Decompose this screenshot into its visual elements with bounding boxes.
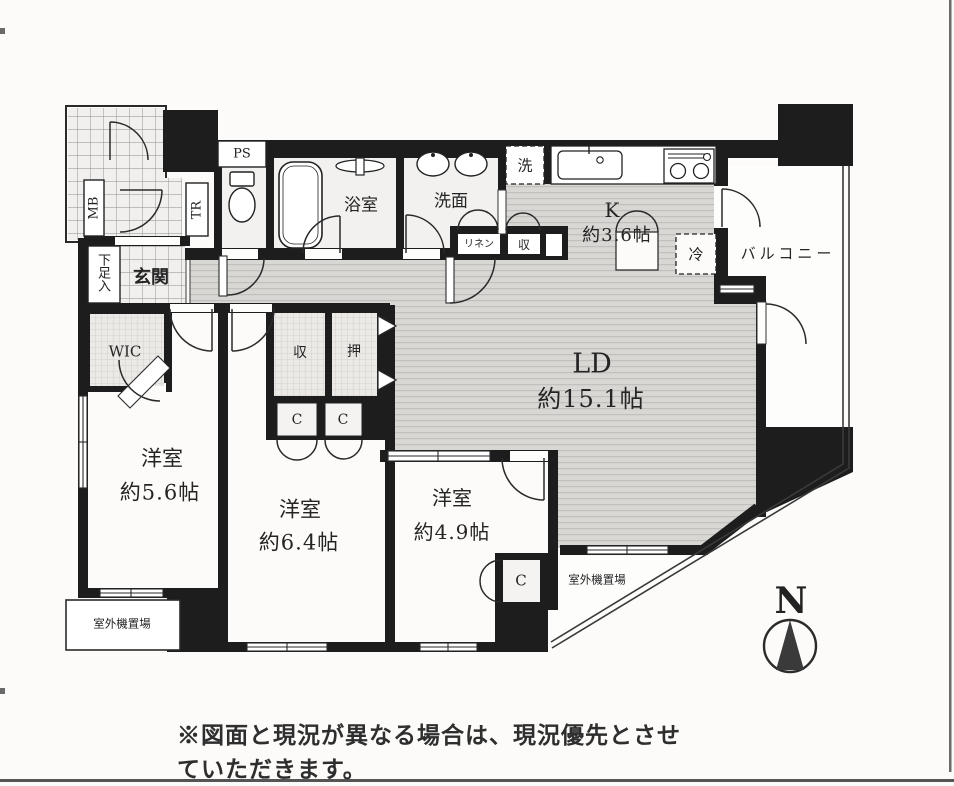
bedroom-a-door [170,309,212,351]
tr-box [186,183,208,236]
outdoor-unit-box [66,600,180,650]
window-jog-sill [720,285,754,293]
window-bedroom-b-bottom [247,643,327,651]
disclaimer-note: ※図面と現況が異なる場合は、現況優先とさせていただきます。 [177,716,695,784]
window-bedroom-a-bottom [100,589,163,597]
washing-machine-box [506,146,544,184]
ps-box [218,141,266,167]
window-bedroom-a-side [79,396,87,488]
north-compass [764,620,816,672]
closet-c1-bifold [277,440,317,460]
kitchen-counter [551,146,716,184]
window-ld-bottom [587,546,668,554]
linen-box [458,234,500,254]
toilet [229,172,255,222]
floor-plan-drawing [0,0,954,786]
bathtub [279,162,322,248]
window-bedroom-c-ld [388,451,490,461]
oshiire-box [332,313,377,396]
closet-c1-box [277,403,317,436]
shoe-cabinet-box [88,246,120,303]
kitchen-sink [558,151,622,179]
hall-storage-box [508,234,540,254]
stove [664,149,714,183]
floor-plan-canvas: PS MB TR 下足入 玄関 浴室 洗面 洗 リネン 収 K 約3.6帖 冷 … [0,0,954,786]
entrance-step [186,260,190,303]
pantry-box [616,232,658,270]
refrigerator-box [676,234,716,274]
closet-c3-box [503,560,540,602]
closet-c2-box [325,403,362,436]
closet-c2-bifold [325,440,362,459]
bedroom-c-door [502,458,544,500]
window-bedroom-c-bottom [420,643,477,651]
mb-box [84,180,104,236]
storage-box [274,313,325,396]
